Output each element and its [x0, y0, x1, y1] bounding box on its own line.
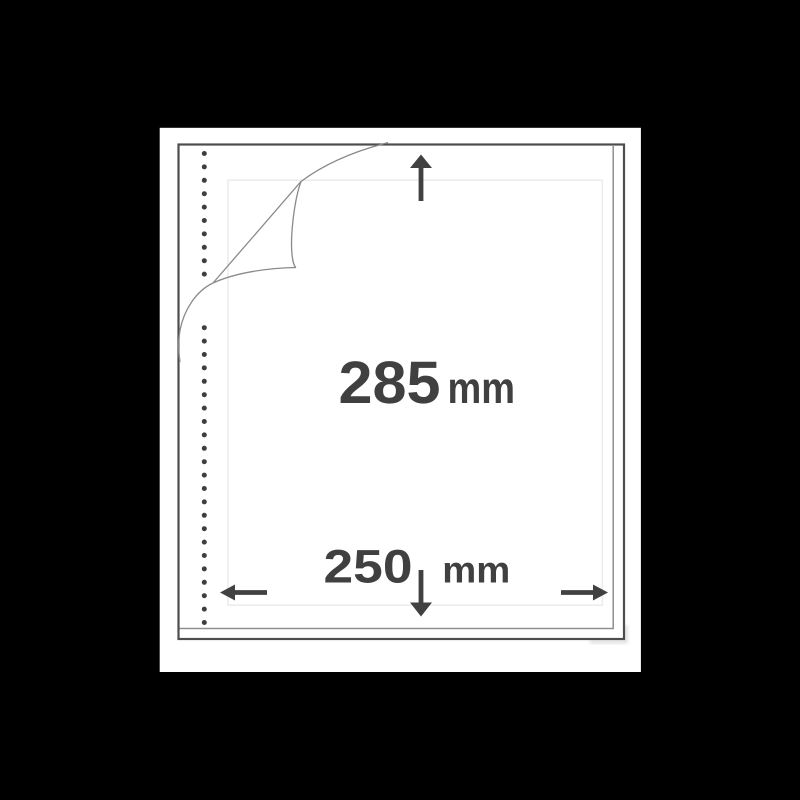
svg-text:250: 250	[324, 540, 413, 593]
svg-text:285: 285	[339, 349, 441, 416]
svg-text:mm: mm	[442, 550, 510, 591]
svg-text:mm: mm	[448, 364, 516, 413]
